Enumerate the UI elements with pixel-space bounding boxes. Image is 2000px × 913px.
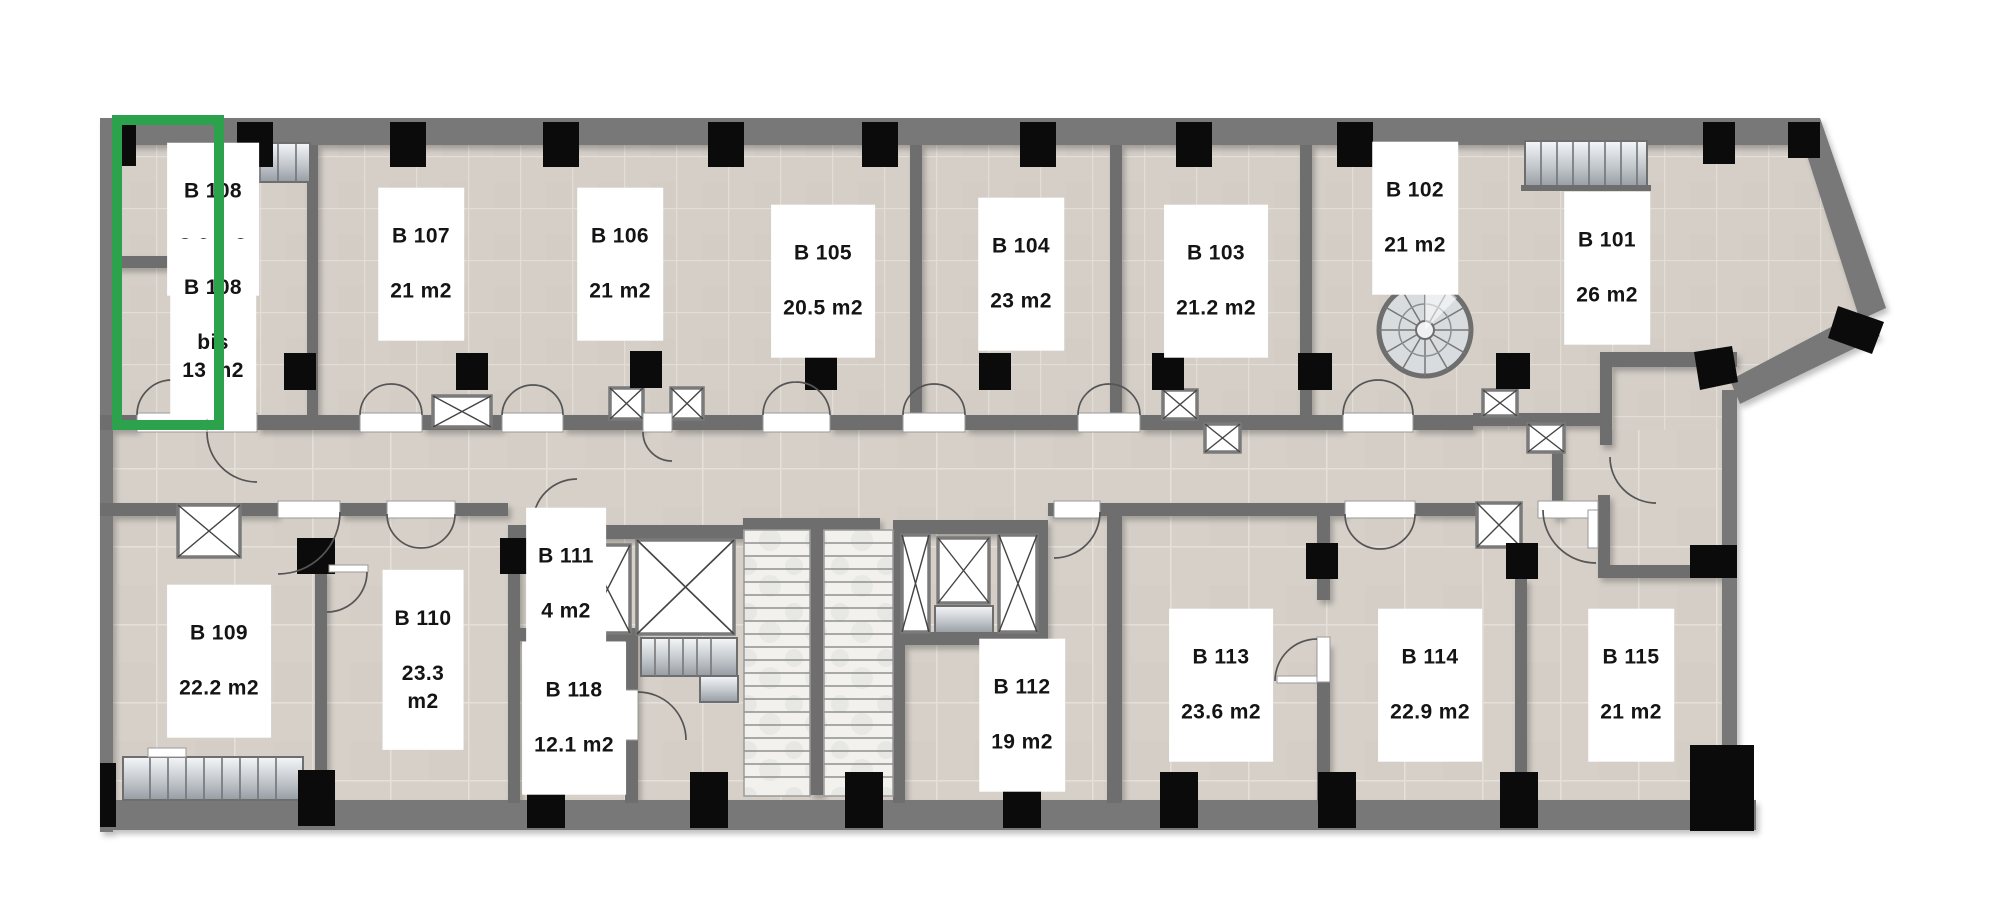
room-area: 4 m2 <box>538 598 594 626</box>
elevator-shaft-icon <box>637 540 734 634</box>
duct-shaft-icon <box>433 396 491 427</box>
room-area: 12.1 m2 <box>534 732 614 760</box>
room-label-b103[interactable]: B 103 21.2 m2 <box>1164 205 1268 358</box>
room-name: B 114 <box>1390 643 1470 671</box>
duct-shaft-icon <box>1205 424 1240 452</box>
elevator-shaft-icon <box>938 538 989 603</box>
duct-shaft-icon <box>1477 503 1521 547</box>
room-area: 21 m2 <box>1600 699 1662 727</box>
room-name: B 110 <box>395 605 452 633</box>
duct-shaft-icon <box>1163 390 1197 419</box>
room-label-b110[interactable]: B 110 23.3 m2 <box>383 570 464 750</box>
room-label-b111[interactable]: B 111 4 m2 <box>526 508 606 661</box>
room-name: B 105 <box>783 239 863 267</box>
room-name: B 109 <box>179 619 259 647</box>
elevator-sill <box>935 606 993 633</box>
room-area: 23.3 m2 <box>395 660 452 715</box>
duct-shaft-icon <box>178 505 240 557</box>
spiral-staircase-icon <box>1379 284 1471 376</box>
room-name: B 113 <box>1181 643 1261 671</box>
room-name: B 104 <box>990 232 1052 260</box>
duct-shaft-icon <box>610 388 643 419</box>
room-label-b107[interactable]: B 107 21 m2 <box>378 188 464 341</box>
room-area: 21 m2 <box>1384 232 1446 260</box>
selected-unit-highlight[interactable] <box>112 115 224 430</box>
room-name: B 112 <box>991 673 1053 701</box>
room-label-b102[interactable]: B 102 21 m2 <box>1372 142 1458 295</box>
room-label-b113[interactable]: B 113 23.6 m2 <box>1169 609 1273 762</box>
room-label-b115[interactable]: B 115 21 m2 <box>1588 609 1674 762</box>
room-area: 23.6 m2 <box>1181 699 1261 727</box>
room-label-b104[interactable]: B 104 23 m2 <box>978 198 1064 351</box>
room-area: 21 m2 <box>589 278 651 306</box>
room-area: 19 m2 <box>991 729 1053 757</box>
room-name: B 102 <box>1384 176 1446 204</box>
elevator-shaft-icon <box>999 535 1037 632</box>
room-label-b101[interactable]: B 101 26 m2 <box>1564 192 1650 345</box>
duct-shaft-icon <box>1483 390 1517 416</box>
room-area: 22.2 m2 <box>179 675 259 703</box>
duct-shaft-icon <box>1528 424 1564 452</box>
duct-shaft-icon <box>671 388 703 419</box>
room-label-b106[interactable]: B 106 21 m2 <box>577 188 663 341</box>
room-area: 22.9 m2 <box>1390 699 1470 727</box>
room-name: B 103 <box>1176 239 1256 267</box>
room-area: 21.2 m2 <box>1176 295 1256 323</box>
room-area: 21 m2 <box>390 278 452 306</box>
room-name: B 106 <box>589 222 651 250</box>
room-name: B 115 <box>1600 643 1662 671</box>
floor-plan: B 108 8.6 m2 B 108 bis 13 m2 B 107 21 m2… <box>0 0 2000 913</box>
room-area: 20.5 m2 <box>783 295 863 323</box>
room-area: 23 m2 <box>990 288 1052 316</box>
room-name: B 107 <box>390 222 452 250</box>
room-label-b112[interactable]: B 112 19 m2 <box>979 639 1065 792</box>
room-label-b105[interactable]: B 105 20.5 m2 <box>771 205 875 358</box>
room-area: 26 m2 <box>1576 282 1638 310</box>
room-name: B 118 <box>534 676 614 704</box>
elevator-shaft-icon <box>902 535 929 632</box>
room-label-b109[interactable]: B 109 22.2 m2 <box>167 585 271 738</box>
room-label-b118[interactable]: B 118 12.1 m2 <box>522 642 626 795</box>
room-name: B 111 <box>538 542 594 570</box>
room-name: B 101 <box>1576 226 1638 254</box>
room-label-b114[interactable]: B 114 22.9 m2 <box>1378 609 1482 762</box>
